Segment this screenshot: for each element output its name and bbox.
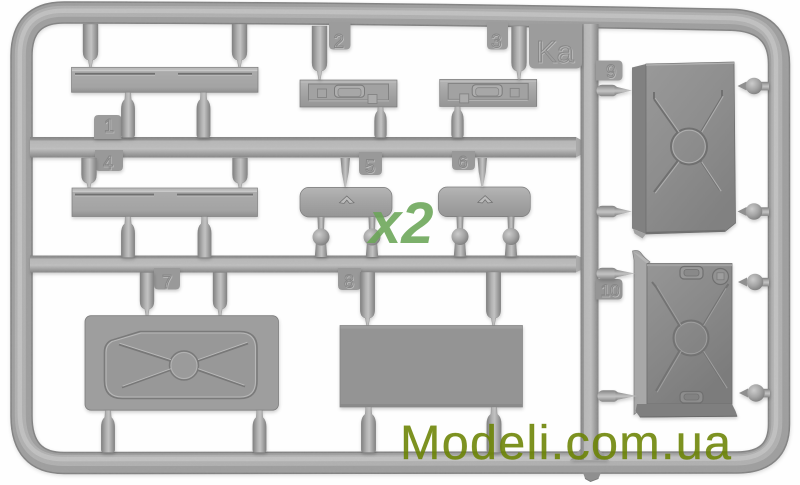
svg-text:5: 5 [365,157,375,177]
svg-text:6: 6 [458,153,467,172]
svg-text:7: 7 [162,272,172,292]
svg-text:1: 1 [104,116,114,136]
svg-text:x2: x2 [366,191,434,256]
svg-text:Modeli.com.ua: Modeli.com.ua [400,416,732,470]
svg-text:9: 9 [606,62,616,82]
svg-text:10: 10 [601,281,620,300]
svg-text:8: 8 [344,272,354,292]
svg-text:Ka: Ka [536,34,575,69]
svg-text:4: 4 [103,153,113,173]
svg-text:2: 2 [334,32,345,53]
svg-text:3: 3 [491,32,502,53]
